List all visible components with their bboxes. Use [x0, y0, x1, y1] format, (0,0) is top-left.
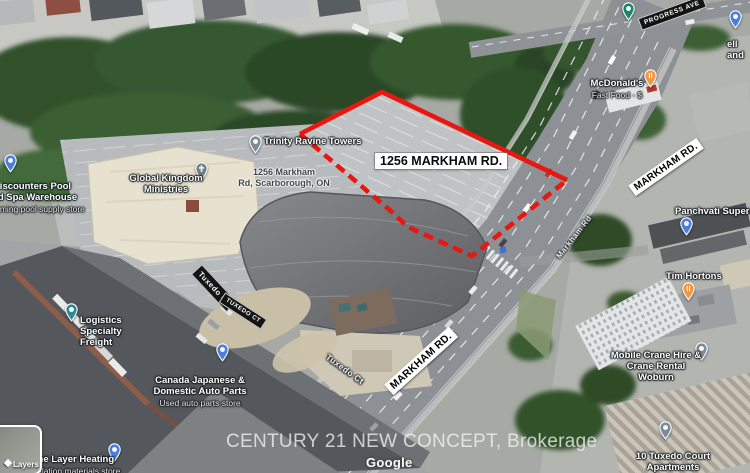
google-logo[interactable]: Google	[366, 455, 413, 470]
map-pin-panchvati[interactable]	[680, 217, 693, 236]
poi-subtitle: Used auto parts store	[146, 399, 254, 409]
layers-control[interactable]: Layers	[0, 425, 42, 473]
map-pin-unlabeled-green[interactable]	[622, 2, 635, 21]
poi-name: 10 Tuxedo Court Apartments	[636, 451, 710, 473]
brokerage-watermark: CENTURY 21 NEW CONCEPT, Brokerage	[226, 431, 597, 453]
map-pin-tuxedo-apartments[interactable]	[659, 421, 672, 440]
poi-name: Trinity Ravine Towers	[264, 136, 362, 147]
poi-label-edge-partial[interactable]: ell and	[727, 29, 744, 62]
poi-name: Mobile Crane Hire & Crane Rental Woburn	[611, 350, 701, 383]
poi-name: Global Kingdom Ministries	[129, 173, 202, 195]
poi-name: McDonald's	[591, 78, 644, 89]
poi-label-panchvati[interactable]: Panchvati Supermarket	[675, 207, 750, 218]
layers-label: Layers	[13, 460, 39, 469]
map-pin-tim-hortons[interactable]	[682, 282, 695, 301]
poi-name: Logistics Specialty Freight	[80, 315, 122, 348]
poi-name: Canada Japanese & Domestic Auto Parts	[153, 375, 246, 397]
address-label-1256-markham[interactable]: 1256 Markham Rd, Scarborough, ON	[228, 157, 340, 188]
parcel-address-annotation: 1256 MARKHAM RD.	[375, 153, 507, 169]
poi-name: Discounters Pool and Spa Warehouse	[0, 181, 77, 203]
map-viewport[interactable]: Discounters Pool and Spa Warehouse Swimm…	[0, 0, 750, 473]
map-pin-canada-auto-parts[interactable]	[216, 343, 229, 362]
map-pin-logistics-freight[interactable]	[65, 303, 78, 322]
poi-name: The Layer Heating	[32, 454, 114, 465]
poi-name: ell and	[727, 39, 744, 61]
poi-subtitle: Swimming pool supply store	[0, 205, 88, 215]
address-text: 1256 Markham Rd, Scarborough, ON	[238, 167, 330, 187]
layers-icon	[4, 459, 12, 467]
poi-name: Panchvati Supermarket	[675, 206, 750, 217]
poi-label-global-kingdom[interactable]: Global Kingdom Ministries	[120, 163, 212, 196]
poi-label-mcdonalds[interactable]: McDonald's Fast Food · $	[588, 68, 646, 112]
map-pin-trinity-ravine[interactable]	[249, 135, 262, 154]
poi-label-tuxedo-apartments[interactable]: 10 Tuxedo Court Apartments	[628, 441, 718, 473]
poi-label-tim-hortons[interactable]: Tim Hortons	[666, 272, 722, 283]
poi-label-mobile-crane[interactable]: Mobile Crane Hire & Crane Rental Woburn	[610, 340, 702, 384]
map-pin-edge-partial[interactable]	[729, 10, 742, 29]
poi-label-canada-auto-parts[interactable]: Canada Japanese & Domestic Auto Parts Us…	[146, 365, 254, 419]
poi-label-logistics-freight[interactable]: Logistics Specialty Freight	[80, 305, 152, 349]
poi-name: Tim Hortons	[666, 271, 722, 282]
poi-subtitle: Fast Food · $	[588, 91, 646, 101]
poi-label-discounters-pool[interactable]: Discounters Pool and Spa Warehouse Swimm…	[0, 171, 88, 225]
poi-label-trinity-ravine[interactable]: Trinity Ravine Towers	[264, 137, 362, 148]
